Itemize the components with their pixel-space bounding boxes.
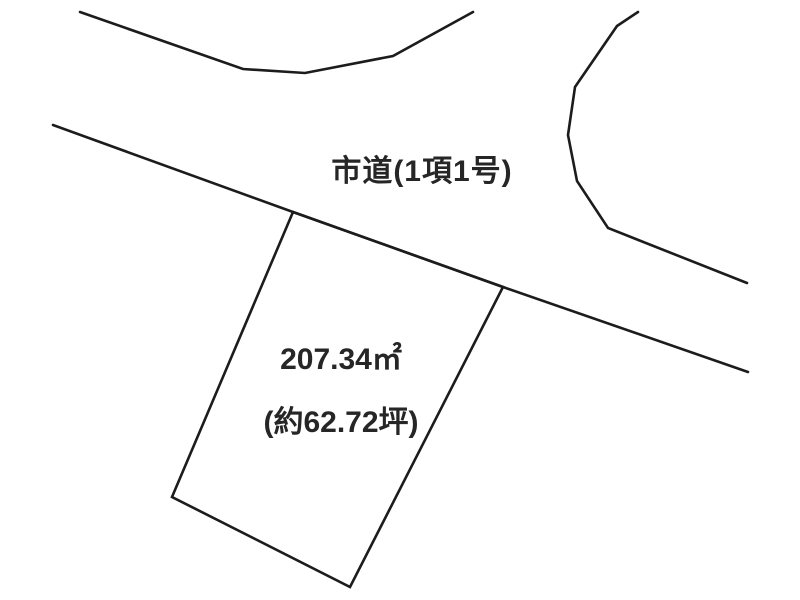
road-upper-right-boundary: [568, 12, 747, 283]
road-label: 市道(1項1号): [331, 146, 512, 190]
parcel-area-tsubo: (約62.72坪): [263, 397, 418, 441]
plan-lines: [0, 0, 800, 600]
parcel-area-label: 207.34㎡ (約62.72坪): [263, 334, 418, 441]
road-upper-left-boundary: [80, 12, 473, 73]
parcel-area-sqm: 207.34㎡: [263, 334, 418, 378]
site-plan-diagram: 市道(1項1号) 207.34㎡ (約62.72坪): [0, 0, 800, 600]
